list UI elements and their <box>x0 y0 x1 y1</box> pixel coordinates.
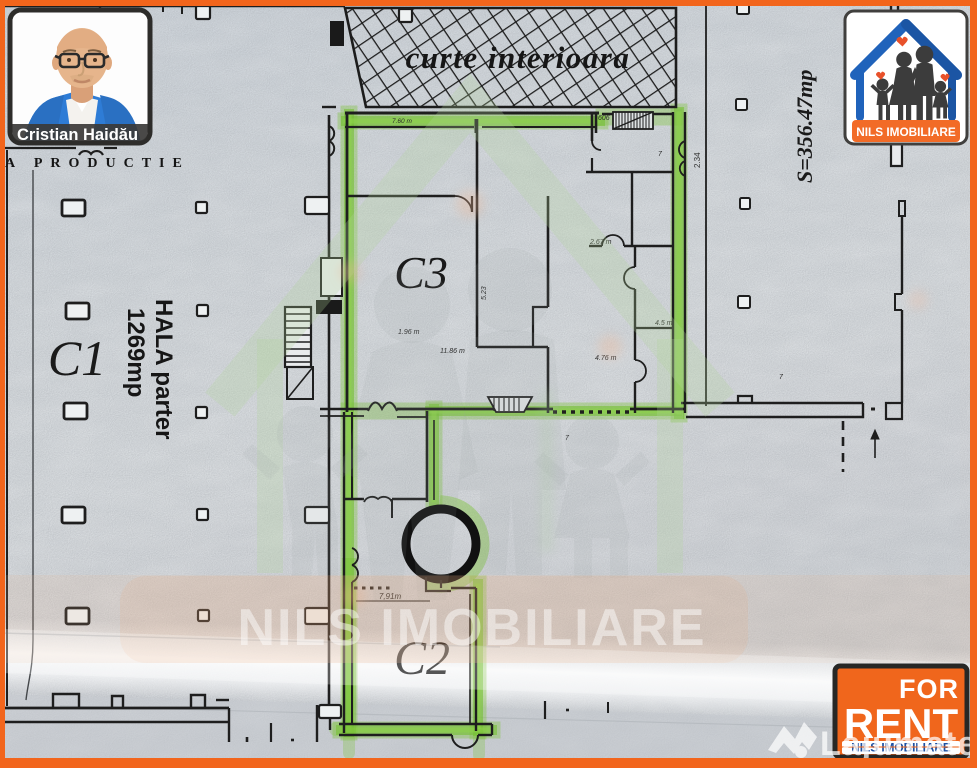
svg-text:Lajumate.ro: Lajumate.ro <box>820 725 977 763</box>
svg-text:1269mp: 1269mp <box>122 308 149 397</box>
svg-text:curte interioara: curte interioara <box>406 40 631 75</box>
svg-text:2.34: 2.34 <box>693 152 702 168</box>
svg-text:HALA parter: HALA parter <box>150 299 177 439</box>
svg-text:C1: C1 <box>48 330 106 386</box>
svg-text:606: 606 <box>598 115 610 122</box>
svg-text:Cristian Haidău: Cristian Haidău <box>17 126 138 144</box>
svg-text:NILS IMOBILIARE: NILS IMOBILIARE <box>856 125 956 139</box>
svg-text:7.60 m: 7.60 m <box>392 118 412 125</box>
svg-text:A PRODUCTIE: A PRODUCTIE <box>5 156 190 171</box>
svg-text:S=356.47mp: S=356.47mp <box>792 70 817 183</box>
